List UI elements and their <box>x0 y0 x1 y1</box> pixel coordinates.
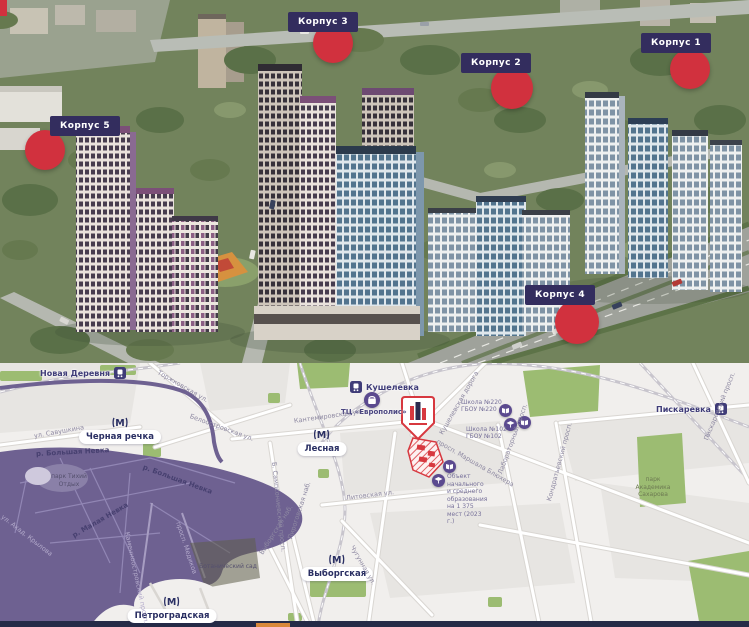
train-icon <box>114 367 126 379</box>
marker-label-korpus-1[interactable]: Корпус 1 <box>641 33 711 53</box>
river-label: р. Большая Невка <box>142 463 214 496</box>
street-label: Кантемировская ул. <box>293 407 363 425</box>
park-label: парк Академика Сахарова <box>630 476 676 499</box>
rail-label: Новая Деревня <box>40 369 110 378</box>
marker-circle-korpus-2[interactable] <box>491 67 533 109</box>
school-102-label: Школа №102ГБОУ №102 <box>466 426 507 440</box>
metro-icon: М <box>112 416 128 429</box>
rail-label: Пискаревка <box>656 405 711 414</box>
street-label: Торжковская ул. <box>156 369 210 405</box>
education-icon <box>432 474 445 487</box>
metro-label: Лесная <box>298 442 347 456</box>
svg-text:М: М <box>332 555 341 566</box>
mall-icon <box>364 392 380 408</box>
metro-station-lesnaya: М Лесная <box>298 428 347 456</box>
street-label: ул. Акад. Крылова <box>0 513 54 558</box>
street-label: Кондратьевский просп. <box>545 422 574 502</box>
metro-station-chernaya-rechka: М Черная речка <box>79 416 161 444</box>
svg-text:М: М <box>317 430 326 441</box>
metro-icon: М <box>164 595 180 608</box>
street-label: Белоостровская ул. <box>189 412 255 443</box>
education-icon <box>443 460 456 473</box>
park-label: парк Тихий Отдых <box>44 473 94 488</box>
marker-circle-korpus-4[interactable] <box>555 300 599 344</box>
marker-circle-korpus-5[interactable] <box>25 130 65 170</box>
marker-label-korpus-5[interactable]: Корпус 5 <box>50 116 120 136</box>
metro-icon: М <box>314 428 330 441</box>
education-object-note: Объект начального и среднего образования… <box>447 473 487 526</box>
river-label: р. Большая Невка <box>36 446 110 458</box>
project-location-marker[interactable] <box>401 396 435 442</box>
marker-label-korpus-4[interactable]: Корпус 4 <box>525 285 595 305</box>
metro-label: Черная речка <box>79 430 161 444</box>
marker-label-korpus-2[interactable]: Корпус 2 <box>461 53 531 73</box>
slab-korpus4 <box>428 196 570 336</box>
rail-label: Кушелевка <box>366 383 419 392</box>
svg-text:М: М <box>115 418 124 429</box>
rail-station-novaya-derevnya: Новая Деревня <box>40 367 126 379</box>
map-overlay: М Черная речка М Лесная М Выборгская <box>0 363 749 627</box>
school-220-label: Школа №220ГБОУ №220 <box>461 399 502 413</box>
street-label: Литовская ул. <box>346 488 395 502</box>
marker-circle-korpus-1[interactable] <box>670 49 710 89</box>
site-render-image <box>0 0 749 363</box>
svg-text:М: М <box>167 597 176 608</box>
river-label: р. Малая Невка <box>71 501 130 539</box>
train-icon <box>350 381 362 393</box>
rail-station-kushelevka: Кушелевка <box>350 381 419 393</box>
park-label: Ботанический сад <box>196 563 260 571</box>
street-label: ул. Савушкина <box>33 423 84 440</box>
street-label: просп. Медиков <box>174 521 198 575</box>
marker-label-korpus-3[interactable]: Корпус 3 <box>288 12 358 32</box>
corner-flag <box>0 0 7 16</box>
page: Корпус 1 Корпус 2 Корпус 3 Корпус 4 Корп… <box>0 0 749 627</box>
metro-icon: М <box>329 553 345 566</box>
